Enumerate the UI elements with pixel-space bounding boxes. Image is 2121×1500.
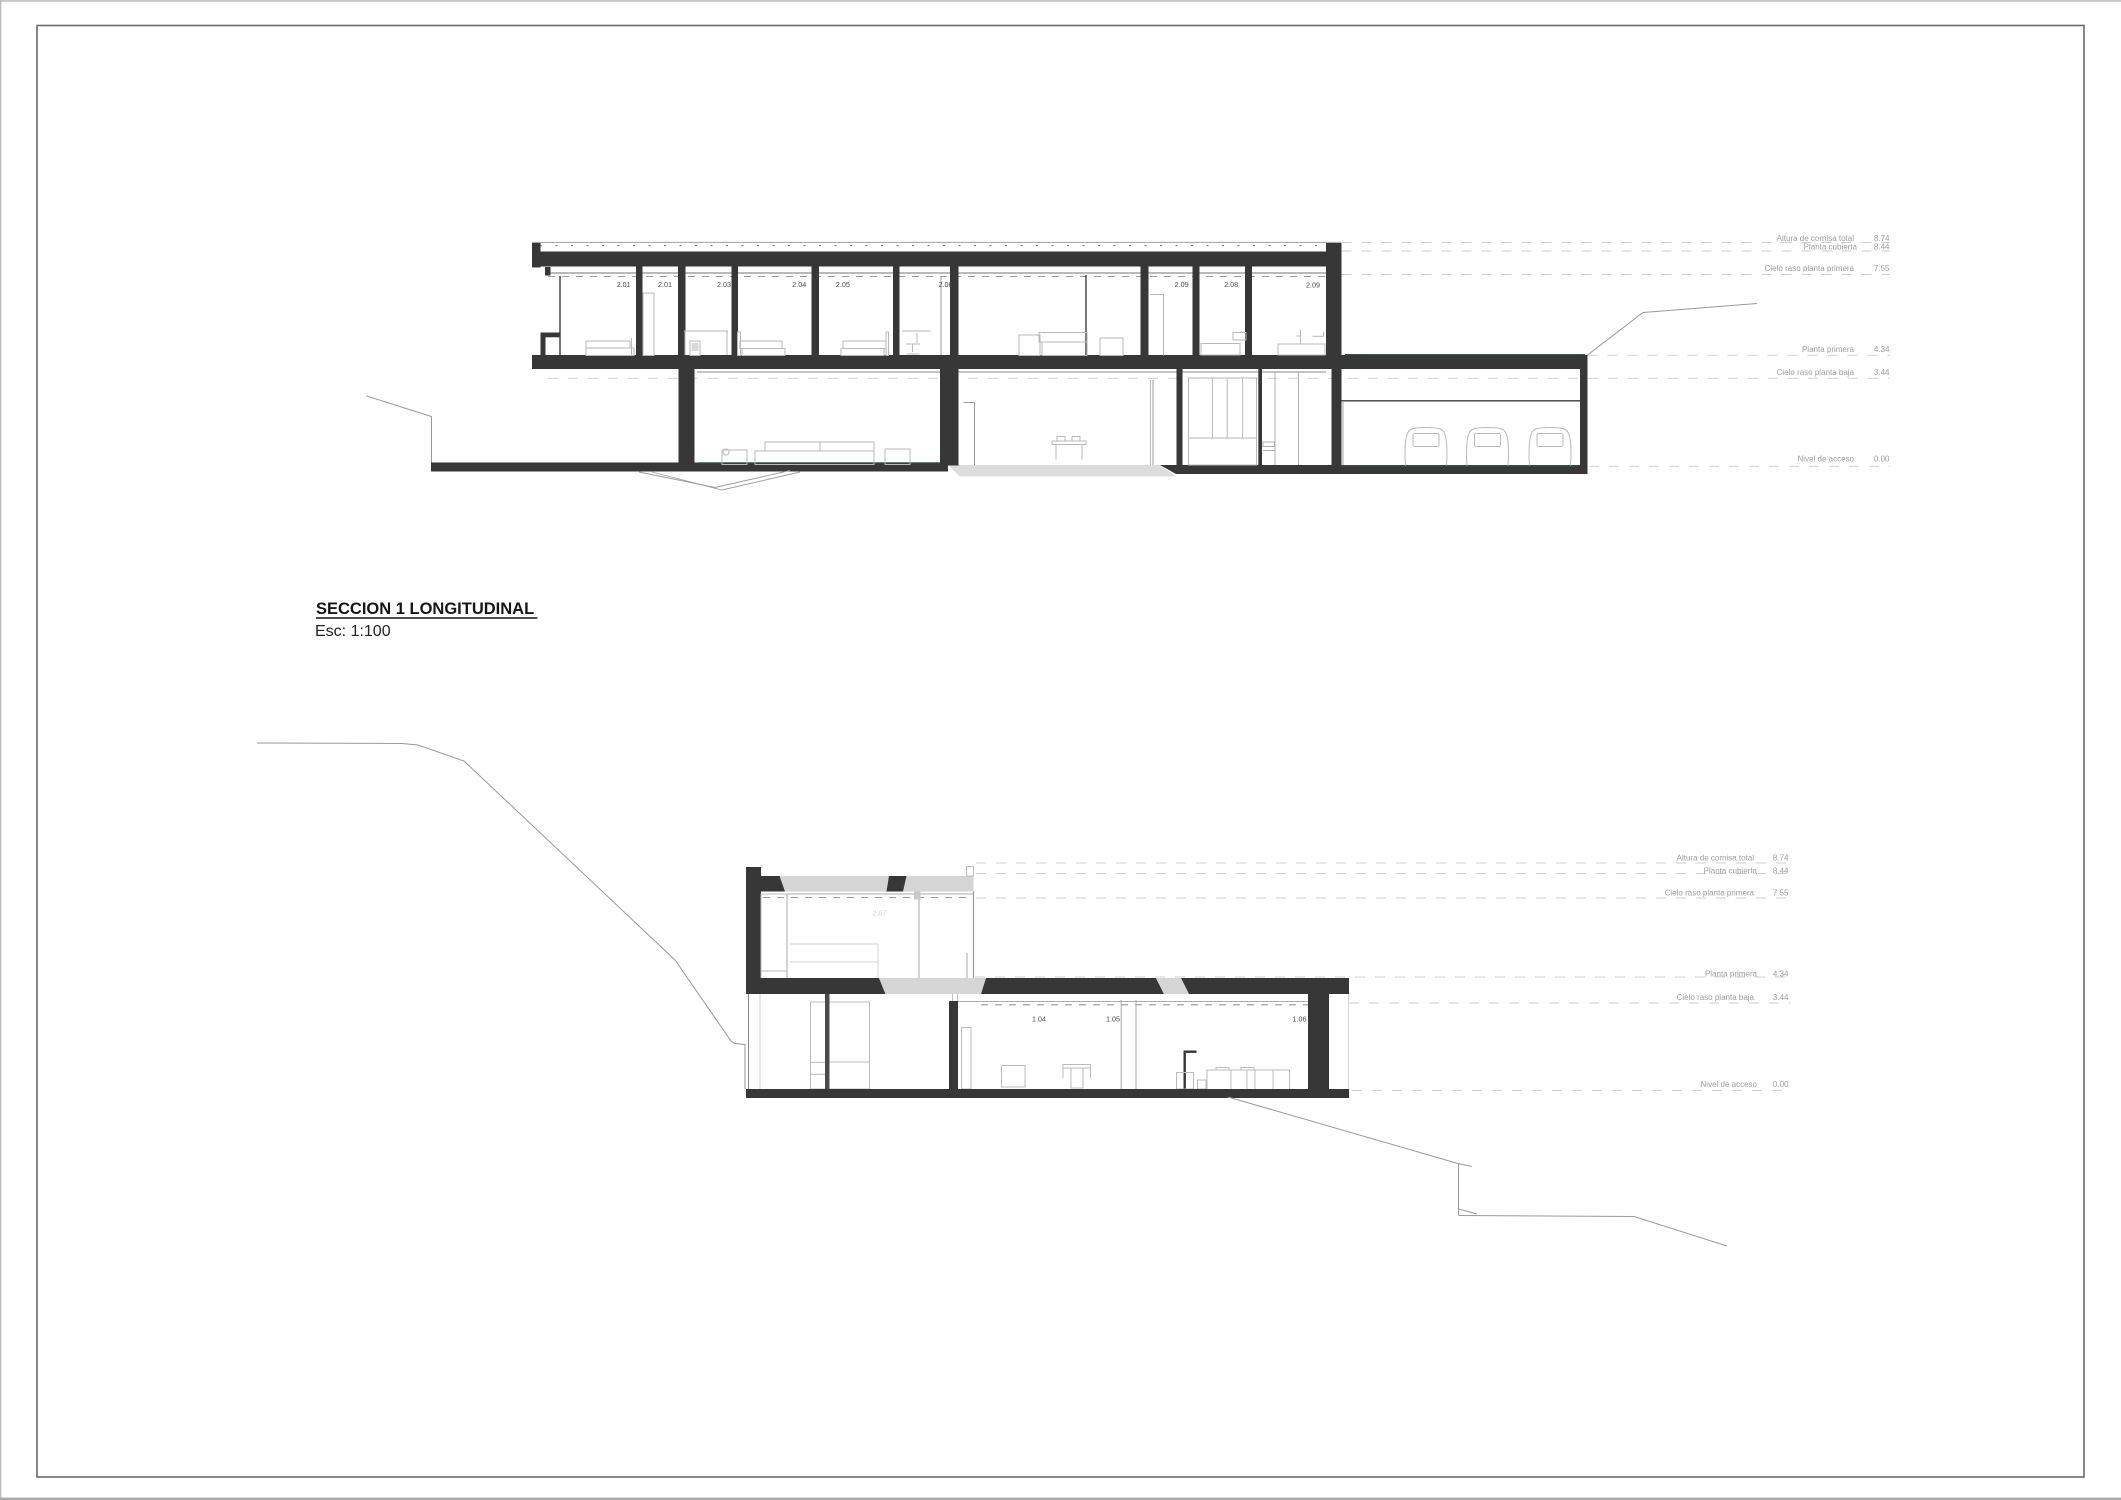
svg-text:8.74: 8.74 [1874,234,1890,243]
svg-text:2.03: 2.03 [717,280,731,289]
svg-text:1.04: 1.04 [1032,1015,1046,1024]
svg-text:2.09: 2.09 [1306,281,1320,290]
svg-text:0.00: 0.00 [1874,455,1890,464]
svg-text:Planta primera: Planta primera [1705,970,1758,979]
svg-text:Cielo raso planta primera: Cielo raso planta primera [1765,264,1855,273]
svg-text:Altura de cornisa total: Altura de cornisa total [1777,234,1855,243]
svg-text:Planta primera: Planta primera [1802,345,1855,354]
svg-text:2.01: 2.01 [617,280,631,289]
svg-text:4.34: 4.34 [1874,345,1890,354]
svg-text:2.08: 2.08 [1224,280,1238,289]
svg-text:2.05: 2.05 [836,280,850,289]
svg-text:Cielo raso planta baja: Cielo raso planta baja [1677,993,1755,1002]
svg-text:2.01: 2.01 [658,280,672,289]
svg-text:3.44: 3.44 [1874,368,1890,377]
svg-text:Esc: 1:100: Esc: 1:100 [315,623,391,640]
svg-text:Nivel de acceso: Nivel de acceso [1798,455,1855,464]
svg-text:8.74: 8.74 [1773,854,1789,863]
svg-text:2.06: 2.06 [939,280,953,289]
svg-text:Cielo raso planta primera: Cielo raso planta primera [1665,889,1755,898]
svg-text:Cielo raso planta baja: Cielo raso planta baja [1777,368,1855,377]
svg-text:1.06: 1.06 [1293,1015,1307,1024]
svg-text:2.04: 2.04 [792,280,806,289]
svg-text:1.05: 1.05 [1106,1015,1120,1024]
svg-text:2.09: 2.09 [1175,280,1189,289]
svg-text:0.00: 0.00 [1773,1080,1789,1089]
svg-text:8.44: 8.44 [1773,867,1789,876]
svg-text:SECCION 1 LONGITUDINAL: SECCION 1 LONGITUDINAL [316,600,534,618]
svg-text:2.07: 2.07 [873,909,887,918]
svg-text:4.34: 4.34 [1773,970,1789,979]
svg-text:Nivel de acceso: Nivel de acceso [1701,1080,1758,1089]
svg-text:7.55: 7.55 [1874,264,1890,273]
svg-text:Planta cubierta: Planta cubierta [1804,243,1858,252]
svg-text:3.44: 3.44 [1773,993,1789,1002]
svg-text:Altura de cornisa total: Altura de cornisa total [1677,854,1755,863]
svg-text:8.44: 8.44 [1874,243,1890,252]
svg-text:7.55: 7.55 [1773,889,1789,898]
svg-text:Planta cubierta: Planta cubierta [1704,867,1758,876]
